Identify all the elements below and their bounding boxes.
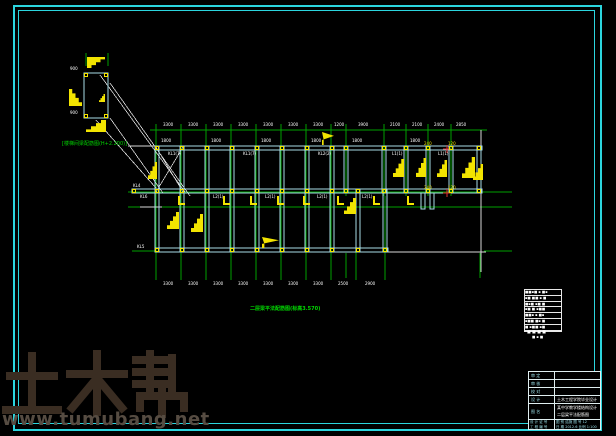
l-mark-icon xyxy=(303,196,310,205)
column-node xyxy=(255,189,259,193)
column-node xyxy=(155,189,159,193)
column-node xyxy=(280,146,284,150)
l-mark-icon xyxy=(277,196,284,205)
column-node xyxy=(305,189,309,193)
column-node xyxy=(477,189,481,193)
dim-label: KL6 xyxy=(140,195,147,199)
l-mark-icon xyxy=(250,196,257,205)
column-node xyxy=(104,114,108,118)
dim-label: 3300 xyxy=(163,123,173,127)
dim-label: 240 xyxy=(424,186,432,190)
title-block-footer-label: 工 程 编 号 xyxy=(529,425,555,430)
column-node xyxy=(477,146,481,150)
title-block-row: 设 计土木工程学院毕业设计 xyxy=(529,396,600,404)
dim-label: 1800 xyxy=(410,139,420,143)
title-block-footer-value: 日 期 2012.6 比例 1:100 xyxy=(555,425,600,430)
dim-label: KL2(2) xyxy=(318,152,331,156)
column-node xyxy=(404,146,408,150)
stair-detail-label: [楼梯间梁配筋图(H+2.200)] xyxy=(62,140,127,147)
dim-label: KL1(7) xyxy=(243,152,256,156)
dim-label: 240 xyxy=(424,142,432,146)
title-block-label: 审 定 xyxy=(529,372,555,379)
title-block: 审 定审 核校 对设 计土木工程学院毕业设计图 名某中学教学楼结构设计二层梁平法… xyxy=(528,371,601,430)
legend-caption: ■ ■ ■ ■ xyxy=(527,329,546,334)
column-node xyxy=(356,189,360,193)
column-node xyxy=(84,73,88,77)
dim-label: 2100 xyxy=(412,123,422,127)
dim-label: 3300 xyxy=(263,282,273,286)
title-block-value: 土木工程学院毕业设计 xyxy=(555,396,600,403)
title-block-label: 审 核 xyxy=(529,380,555,387)
dim-label: 3300 xyxy=(288,123,298,127)
title-block-label: 图 名 xyxy=(529,404,555,419)
dim-label: 120 xyxy=(448,186,456,190)
dim-label: L2(1) xyxy=(362,195,372,199)
column-node xyxy=(155,248,159,252)
title-block-value: 某中学教学楼结构设计二层梁平法配筋图 xyxy=(555,404,600,419)
dim-label: 2400 xyxy=(434,123,444,127)
dim-label: 3300 xyxy=(313,282,323,286)
title-block-row: 校 对 xyxy=(529,388,600,396)
dim-label: 3300 xyxy=(213,282,223,286)
l-mark-icon xyxy=(373,196,380,205)
column-node xyxy=(255,248,259,252)
column-node xyxy=(84,114,88,118)
dim-label: 3300 xyxy=(163,282,173,286)
beam-line xyxy=(155,248,388,252)
dim-label: 1800 xyxy=(211,139,221,143)
column-node xyxy=(344,189,348,193)
dim-label: 2900 xyxy=(365,282,375,286)
dim-label: L1(1) xyxy=(438,152,448,156)
dim-label: 2100 xyxy=(390,123,400,127)
dim-label: 2500 xyxy=(338,282,348,286)
column-node xyxy=(132,189,136,193)
column-node xyxy=(426,146,430,150)
dim-label: 3300 xyxy=(288,282,298,286)
column-node xyxy=(305,146,309,150)
dim-label: KL4 xyxy=(133,184,140,188)
column-node xyxy=(180,146,184,150)
dim-label: 1800 xyxy=(261,139,271,143)
dim-label: 1200 xyxy=(334,123,344,127)
dim-label: L2(1) xyxy=(317,195,327,199)
dim-label: 3300 xyxy=(238,123,248,127)
dim-label: 900 xyxy=(70,67,78,71)
dim-label: KL5 xyxy=(137,245,144,249)
column-node xyxy=(104,73,108,77)
watermark-url: www.tumubang.net xyxy=(2,409,210,430)
dim-label: 3300 xyxy=(263,123,273,127)
column-node xyxy=(230,189,234,193)
title-block-label: 校 对 xyxy=(529,388,555,395)
dim-label: KL1(7) xyxy=(168,152,181,156)
title-block-value xyxy=(555,380,600,387)
title-block-label: 设 计 xyxy=(529,396,555,403)
title-block-footer-row: 工 程 编 号日 期 2012.6 比例 1:100 xyxy=(529,425,600,430)
beam-line xyxy=(356,189,360,252)
column-node xyxy=(382,189,386,193)
column-node xyxy=(230,248,234,252)
column-node xyxy=(180,248,184,252)
column-node xyxy=(449,146,453,150)
column-node xyxy=(180,189,184,193)
cad-drawing-canvas: 3300330033003300330033003300120039002100… xyxy=(0,0,616,436)
dim-label: 2850 xyxy=(456,123,466,127)
dim-label: 900 xyxy=(70,111,78,115)
dim-label: 3300 xyxy=(313,123,323,127)
title-block-row: 审 核 xyxy=(529,380,600,388)
column-node xyxy=(330,248,334,252)
dim-label: 1800 xyxy=(352,139,362,143)
dim-label: 3300 xyxy=(238,282,248,286)
title-block-value xyxy=(555,372,600,379)
column-node xyxy=(255,146,259,150)
column-node xyxy=(280,248,284,252)
column-node xyxy=(356,248,360,252)
dim-label: 3300 xyxy=(188,282,198,286)
l-mark-icon xyxy=(337,196,344,205)
l-mark-icon xyxy=(178,196,185,205)
legend-table: ■■▪■ ▪ ■▪▪■ ■■ ▪ ■■▪■ ▪■ ■▪■ ■ ▪■■■■▪ ▪ … xyxy=(524,289,562,332)
column-node xyxy=(344,146,348,150)
title-block-row: 图 名某中学教学楼结构设计二层梁平法配筋图 xyxy=(529,404,600,420)
column-node xyxy=(230,146,234,150)
l-mark-icon xyxy=(407,196,414,205)
dim-label: 3900 xyxy=(358,123,368,127)
column-node xyxy=(404,189,408,193)
plan-title: 二层梁平法配筋图(标高3.570) xyxy=(250,305,320,312)
column-node xyxy=(330,189,334,193)
column-node xyxy=(382,146,386,150)
column-node xyxy=(330,146,334,150)
dim-label: 120 xyxy=(448,142,456,146)
legend-scale: ■ ▪ ■ xyxy=(532,335,543,339)
column-node xyxy=(205,248,209,252)
column-node xyxy=(155,146,159,150)
column-node xyxy=(383,248,387,252)
column-node xyxy=(280,189,284,193)
dim-label: 1800 xyxy=(161,139,171,143)
dim-label: 3300 xyxy=(188,123,198,127)
column-node xyxy=(205,146,209,150)
dim-label: L2(1) xyxy=(265,195,275,199)
dim-label: 1800 xyxy=(311,139,321,143)
dim-label: L2(1) xyxy=(213,195,223,199)
title-block-row: 审 定 xyxy=(529,372,600,380)
dim-label: L1(1) xyxy=(392,152,402,156)
l-mark-icon xyxy=(223,196,230,205)
dim-label: 3300 xyxy=(213,123,223,127)
column-node xyxy=(305,248,309,252)
title-block-value xyxy=(555,388,600,395)
column-node xyxy=(205,189,209,193)
